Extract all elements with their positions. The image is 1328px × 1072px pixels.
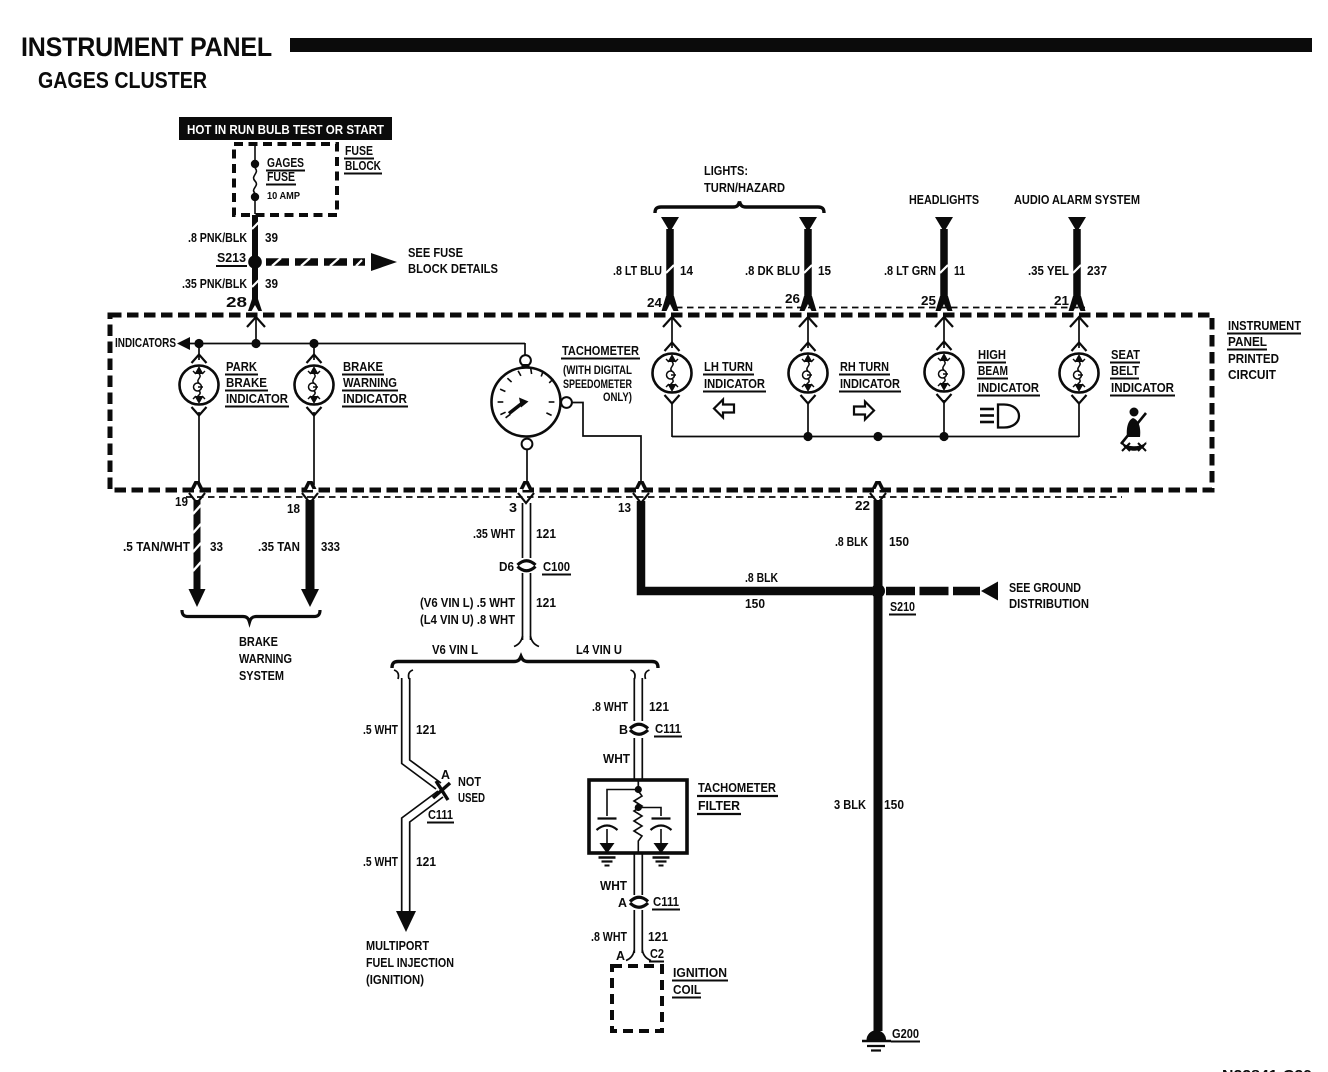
svg-text:(WITH DIGITAL: (WITH DIGITAL	[563, 363, 632, 377]
svg-text:.35 WHT: .35 WHT	[473, 526, 515, 541]
svg-text:.35 PNK/BLK: .35 PNK/BLK	[182, 276, 247, 291]
svg-text:237: 237	[1087, 263, 1107, 278]
svg-text:PRINTED: PRINTED	[1228, 351, 1279, 366]
svg-text:BEAM: BEAM	[978, 363, 1008, 378]
svg-text:.8 PNK/BLK: .8 PNK/BLK	[188, 230, 247, 245]
svg-text:TURN/HAZARD: TURN/HAZARD	[704, 180, 785, 195]
svg-text:D6: D6	[499, 559, 514, 574]
svg-text:19: 19	[175, 494, 188, 509]
svg-text:COIL: COIL	[673, 982, 701, 997]
svg-text:INDICATORS: INDICATORS	[115, 335, 176, 350]
svg-text:121: 121	[648, 929, 668, 944]
svg-text:INSTRUMENT: INSTRUMENT	[1228, 318, 1301, 333]
svg-text:BLOCK DETAILS: BLOCK DETAILS	[408, 261, 498, 276]
svg-text:C111: C111	[653, 894, 679, 909]
svg-text:CIRCUIT: CIRCUIT	[1228, 367, 1276, 382]
svg-text:150: 150	[884, 797, 904, 812]
svg-text:BRAKE: BRAKE	[226, 375, 267, 390]
svg-text:10 AMP: 10 AMP	[267, 190, 300, 202]
svg-text:WHT: WHT	[600, 878, 627, 893]
svg-text:C100: C100	[543, 559, 570, 574]
svg-text:3 BLK: 3 BLK	[834, 797, 867, 812]
svg-text:NOT: NOT	[458, 774, 481, 789]
svg-text:S210: S210	[890, 599, 915, 614]
svg-text:V6 VIN L: V6 VIN L	[432, 642, 478, 657]
svg-text:24: 24	[647, 295, 663, 310]
svg-text:26: 26	[785, 291, 800, 306]
svg-text:39: 39	[265, 230, 278, 245]
svg-text:150: 150	[889, 534, 909, 549]
svg-text:.5 WHT: .5 WHT	[363, 854, 398, 869]
svg-text:333: 333	[321, 539, 340, 554]
svg-text:RH TURN: RH TURN	[840, 359, 889, 374]
svg-text:G200: G200	[892, 1026, 919, 1041]
svg-text:WHT: WHT	[603, 751, 630, 766]
svg-text:FUSE: FUSE	[345, 143, 373, 158]
svg-text:HIGH: HIGH	[978, 347, 1006, 362]
svg-text:INDICATOR: INDICATOR	[1111, 380, 1175, 395]
svg-text:C2: C2	[650, 946, 664, 961]
svg-text:25: 25	[921, 293, 936, 308]
svg-text:B: B	[619, 722, 628, 737]
svg-text:LIGHTS:: LIGHTS:	[704, 163, 748, 178]
svg-text:INSTRUMENT PANEL: INSTRUMENT PANEL	[21, 32, 272, 62]
svg-text:GAGES: GAGES	[267, 155, 304, 170]
svg-text:FILTER: FILTER	[698, 798, 741, 813]
svg-text:HEADLIGHTS: HEADLIGHTS	[909, 192, 979, 207]
svg-text:121: 121	[536, 526, 556, 541]
svg-text:.8 LT GRN: .8 LT GRN	[884, 263, 936, 278]
svg-text:(V6 VIN L) .5 WHT: (V6 VIN L) .5 WHT	[420, 595, 515, 610]
svg-text:MULTIPORT: MULTIPORT	[366, 938, 429, 953]
svg-text:BRAKE: BRAKE	[343, 359, 383, 374]
svg-text:PANEL: PANEL	[1228, 334, 1267, 349]
svg-text:SEE GROUND: SEE GROUND	[1009, 580, 1081, 595]
svg-text:11: 11	[954, 263, 965, 278]
svg-text:INDICATOR: INDICATOR	[978, 380, 1040, 395]
svg-text:GAGES CLUSTER: GAGES CLUSTER	[38, 67, 207, 93]
svg-text:(L4 VIN U) .8 WHT: (L4 VIN U) .8 WHT	[420, 612, 515, 627]
svg-text:.8 BLK: .8 BLK	[745, 570, 778, 585]
svg-text:DISTRIBUTION: DISTRIBUTION	[1009, 596, 1089, 611]
svg-text:.8 LT BLU: .8 LT BLU	[613, 263, 662, 278]
svg-text:33: 33	[210, 539, 223, 554]
svg-text:.35 YEL: .35 YEL	[1028, 263, 1069, 278]
svg-text:TACHOMETER: TACHOMETER	[698, 780, 777, 795]
svg-text:3: 3	[509, 500, 517, 515]
svg-text:INDICATOR: INDICATOR	[704, 376, 766, 391]
svg-text:18: 18	[287, 501, 300, 516]
svg-text:.35 TAN: .35 TAN	[258, 539, 300, 554]
svg-text:C111: C111	[428, 807, 453, 822]
svg-text:AUDIO ALARM SYSTEM: AUDIO ALARM SYSTEM	[1014, 192, 1140, 207]
svg-text:FUSE: FUSE	[267, 169, 295, 184]
svg-text:INDICATOR: INDICATOR	[343, 391, 408, 406]
svg-text:TACHOMETER: TACHOMETER	[562, 343, 640, 358]
svg-text:INDICATOR: INDICATOR	[226, 391, 289, 406]
svg-text:.8 WHT: .8 WHT	[591, 929, 627, 944]
svg-text:FUEL INJECTION: FUEL INJECTION	[366, 955, 454, 970]
svg-text:A: A	[441, 767, 451, 782]
svg-text:.8 WHT: .8 WHT	[592, 699, 628, 714]
svg-text:.8 BLK: .8 BLK	[835, 534, 868, 549]
svg-text:WARNING: WARNING	[239, 651, 292, 666]
svg-text:BRAKE: BRAKE	[239, 634, 278, 649]
svg-text:150: 150	[745, 596, 765, 611]
svg-text:S213: S213	[217, 250, 246, 265]
svg-text:39: 39	[265, 276, 278, 291]
svg-text:121: 121	[416, 854, 436, 869]
svg-text:HOT IN RUN BULB TEST OR START: HOT IN RUN BULB TEST OR START	[187, 123, 384, 137]
svg-text:IGNITION: IGNITION	[673, 965, 727, 980]
svg-text:15: 15	[818, 263, 831, 278]
svg-text:SPEEDOMETER: SPEEDOMETER	[563, 377, 632, 391]
svg-text:A: A	[618, 895, 628, 910]
svg-text:.5 WHT: .5 WHT	[363, 722, 398, 737]
svg-text:LH TURN: LH TURN	[704, 359, 753, 374]
svg-text:13: 13	[618, 500, 631, 515]
svg-text:121: 121	[536, 595, 556, 610]
svg-text:(IGNITION): (IGNITION)	[366, 972, 424, 987]
svg-text:PARK: PARK	[226, 359, 258, 374]
svg-text:SYSTEM: SYSTEM	[239, 668, 284, 683]
svg-text:121: 121	[416, 722, 436, 737]
svg-text:22: 22	[855, 498, 870, 513]
svg-text:.8 DK BLU: .8 DK BLU	[745, 263, 800, 278]
svg-text:SEAT: SEAT	[1111, 347, 1140, 362]
svg-text:USED: USED	[458, 790, 485, 805]
svg-text:N22841-C20: N22841-C20	[1222, 1067, 1312, 1072]
svg-text:BLOCK: BLOCK	[345, 158, 381, 173]
svg-text:ONLY): ONLY)	[603, 390, 632, 404]
svg-text:L4 VIN U: L4 VIN U	[576, 642, 622, 657]
svg-text:14: 14	[680, 263, 694, 278]
svg-text:WARNING: WARNING	[343, 375, 397, 390]
svg-text:SEE FUSE: SEE FUSE	[408, 245, 463, 260]
svg-text:28: 28	[226, 294, 247, 311]
svg-text:121: 121	[649, 699, 669, 714]
svg-text:A: A	[616, 948, 626, 963]
svg-text:21: 21	[1054, 293, 1069, 308]
svg-text:BELT: BELT	[1111, 363, 1139, 378]
svg-text:C111: C111	[655, 721, 681, 736]
svg-text:INDICATOR: INDICATOR	[840, 376, 901, 391]
svg-text:.5 TAN/WHT: .5 TAN/WHT	[123, 539, 190, 554]
